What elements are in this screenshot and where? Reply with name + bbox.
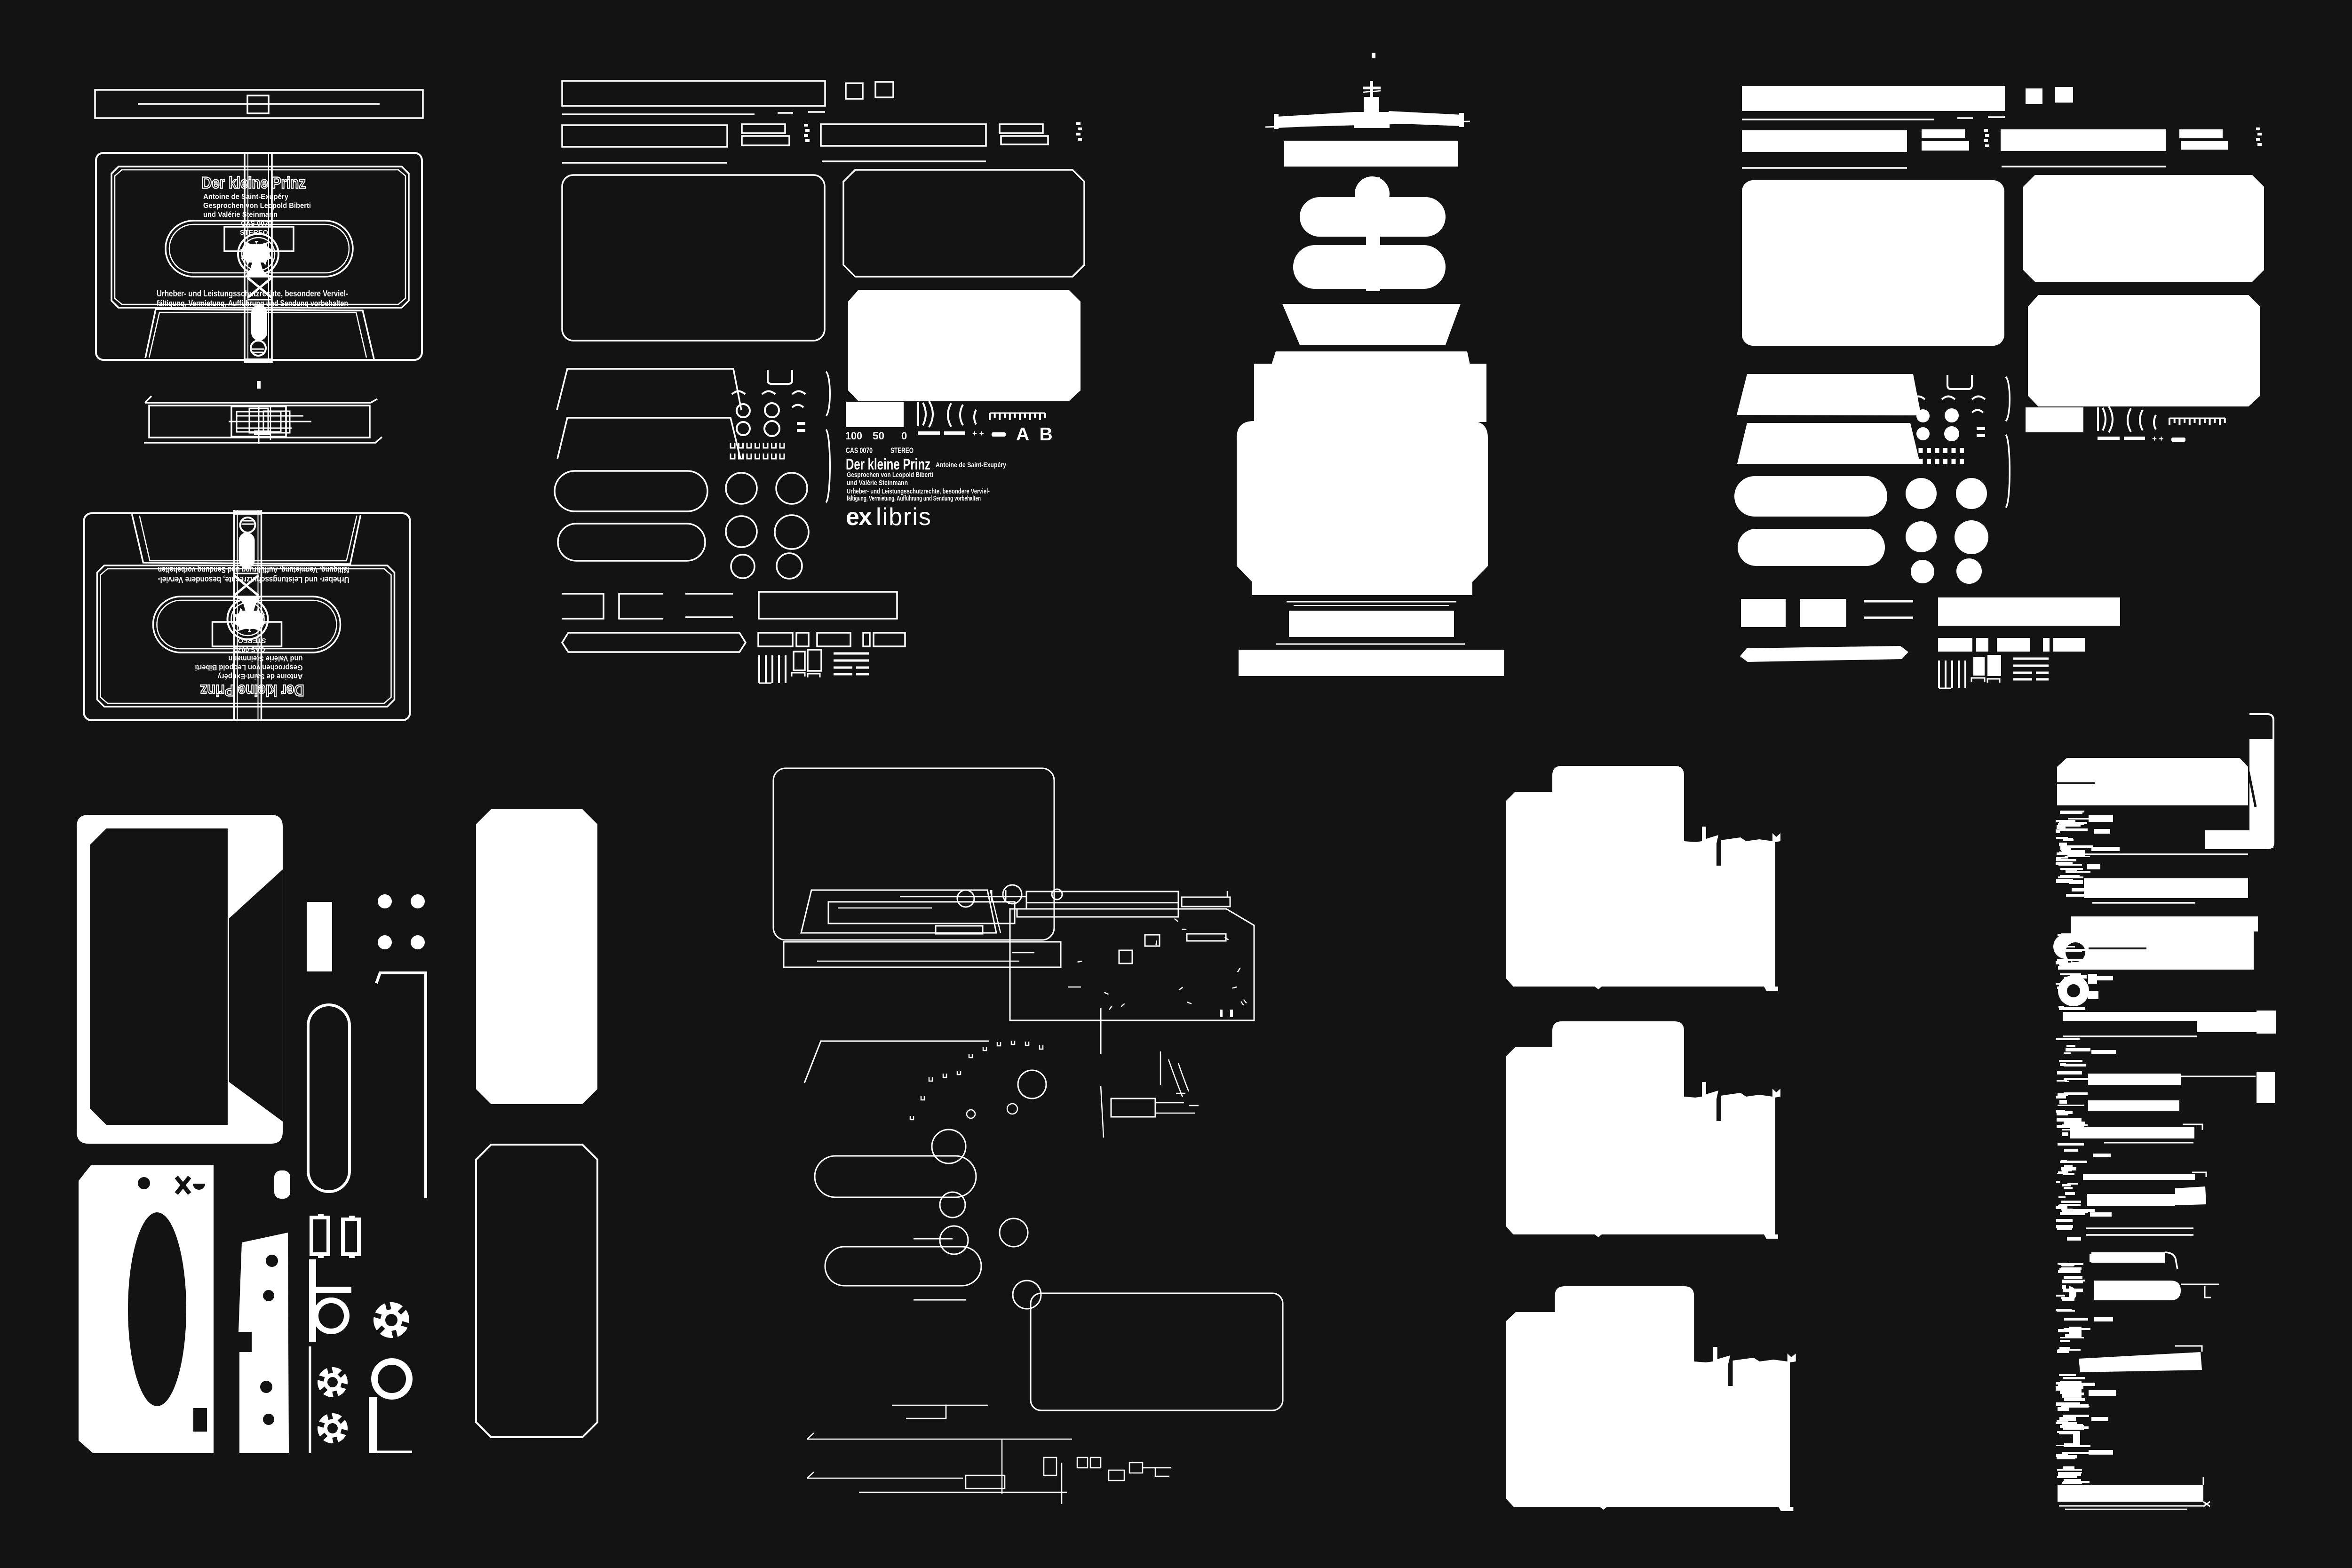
svg-text:CAS 0070: CAS 0070: [241, 220, 272, 228]
svg-text:STEREO: STEREO: [238, 637, 266, 645]
svg-text:Antoine de Saint-Exupéry: Antoine de Saint-Exupéry: [203, 193, 288, 201]
svg-text:Der kleine Prinz: Der kleine Prinz: [846, 455, 930, 473]
svg-text:Urheber- und Leistungsschutzre: Urheber- und Leistungsschutzrechte, beso…: [157, 289, 348, 298]
svg-text:und Valérie Steinmann: und Valérie Steinmann: [229, 654, 303, 662]
svg-text:Urheber- und Leistungsschutzre: Urheber- und Leistungsschutzrechte, beso…: [158, 575, 350, 584]
svg-text:CAS 0070: CAS 0070: [234, 645, 265, 653]
svg-text:Der kleine Prinz: Der kleine Prinz: [202, 174, 306, 192]
svg-text:+ +: + +: [2152, 434, 2164, 443]
svg-text:CAS 0070: CAS 0070: [846, 446, 873, 455]
svg-text:50: 50: [873, 430, 884, 442]
svg-text:fältigung, Vermietung, Aufführ: fältigung, Vermietung, Aufführung und Se…: [158, 565, 350, 574]
svg-text:Gesprochen von Leopold Biberti: Gesprochen von Leopold Biberti: [847, 471, 933, 479]
svg-text:und Valérie Steinmann: und Valérie Steinmann: [847, 479, 908, 487]
svg-text:und Valérie Steinmann: und Valérie Steinmann: [203, 211, 278, 219]
svg-text:STEREO: STEREO: [890, 446, 914, 455]
svg-text:A B: A B: [1016, 424, 1056, 445]
svg-text:100: 100: [845, 430, 862, 442]
svg-text:+ +: + +: [972, 429, 984, 438]
svg-text:Gesprochen von Leopold Biberti: Gesprochen von Leopold Biberti: [203, 202, 311, 210]
svg-text:STEREO: STEREO: [240, 229, 268, 237]
svg-text:0: 0: [901, 430, 907, 442]
svg-text:Antoine de Saint-Exupéry: Antoine de Saint-Exupéry: [217, 672, 302, 680]
svg-text:ex: ex: [846, 503, 872, 531]
svg-text:Gesprochen von Leopold Biberti: Gesprochen von Leopold Biberti: [195, 663, 303, 671]
svg-text:fältigung, Vermietung, Aufführ: fältigung, Vermietung, Aufführung und Se…: [157, 299, 348, 308]
svg-text:Antoine de Saint-Exupéry: Antoine de Saint-Exupéry: [936, 461, 1007, 469]
svg-text:Der kleine Prinz: Der kleine Prinz: [200, 681, 304, 699]
svg-text:fältigung, Vermietung, Aufführ: fältigung, Vermietung, Aufführung und Se…: [847, 494, 981, 502]
svg-text:libris: libris: [876, 503, 932, 531]
